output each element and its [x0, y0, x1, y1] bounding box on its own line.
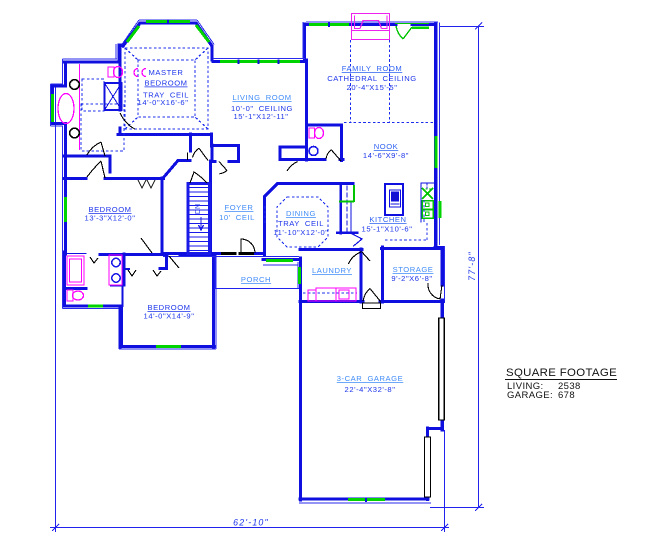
svg-text:3-CAR GARAGE: 3-CAR GARAGE: [337, 374, 404, 383]
svg-text:PORCH: PORCH: [241, 275, 271, 284]
svg-text:MASTER: MASTER: [149, 68, 184, 77]
svg-text:TRAY CEIL: TRAY CEIL: [278, 219, 324, 228]
svg-text:10' CEIL: 10' CEIL: [219, 213, 255, 222]
svg-text:LAUNDRY: LAUNDRY: [312, 266, 352, 275]
svg-text:15'-1"X12'-11": 15'-1"X12'-11": [233, 112, 288, 121]
svg-text:62'-10": 62'-10": [233, 518, 269, 528]
svg-text:FAMILY ROOM: FAMILY ROOM: [342, 64, 403, 73]
svg-text:NOOK: NOOK: [374, 142, 399, 151]
svg-text:20'-4"X15'-5": 20'-4"X15'-5": [347, 83, 398, 92]
svg-text:9'-2"X6'-8": 9'-2"X6'-8": [391, 274, 432, 283]
svg-text:STORAGE: STORAGE: [393, 265, 434, 274]
svg-text:BEDROOM: BEDROOM: [144, 79, 187, 88]
svg-text:77'-8": 77'-8": [467, 251, 477, 281]
svg-text:11'-10"X12'-0": 11'-10"X12'-0": [273, 228, 328, 237]
svg-text:CATHEDRAL CEILING: CATHEDRAL CEILING: [327, 74, 417, 83]
svg-text:KITCHEN: KITCHEN: [369, 215, 406, 224]
svg-text:SQUARE FOOTAGE: SQUARE FOOTAGE: [506, 367, 617, 379]
svg-text:GARAGE:: GARAGE:: [507, 390, 553, 401]
svg-text:LIVING ROOM: LIVING ROOM: [232, 93, 291, 102]
svg-text:14'-6"X9'-8": 14'-6"X9'-8": [363, 151, 409, 160]
svg-text:14'-0"X16'-6": 14'-0"X16'-6": [138, 98, 189, 107]
svg-text:14'-0"X14'-9": 14'-0"X14'-9": [144, 312, 195, 321]
svg-text:13'-3"X12'-0": 13'-3"X12'-0": [85, 214, 136, 223]
svg-text:678: 678: [558, 390, 575, 401]
svg-text:DINING: DINING: [286, 209, 316, 218]
svg-text:FOYER: FOYER: [225, 203, 254, 212]
svg-text:22'-4"X32'-8": 22'-4"X32'-8": [345, 385, 396, 394]
svg-text:DN: DN: [195, 204, 202, 214]
svg-text:15'-1"X10'-6": 15'-1"X10'-6": [362, 225, 413, 234]
